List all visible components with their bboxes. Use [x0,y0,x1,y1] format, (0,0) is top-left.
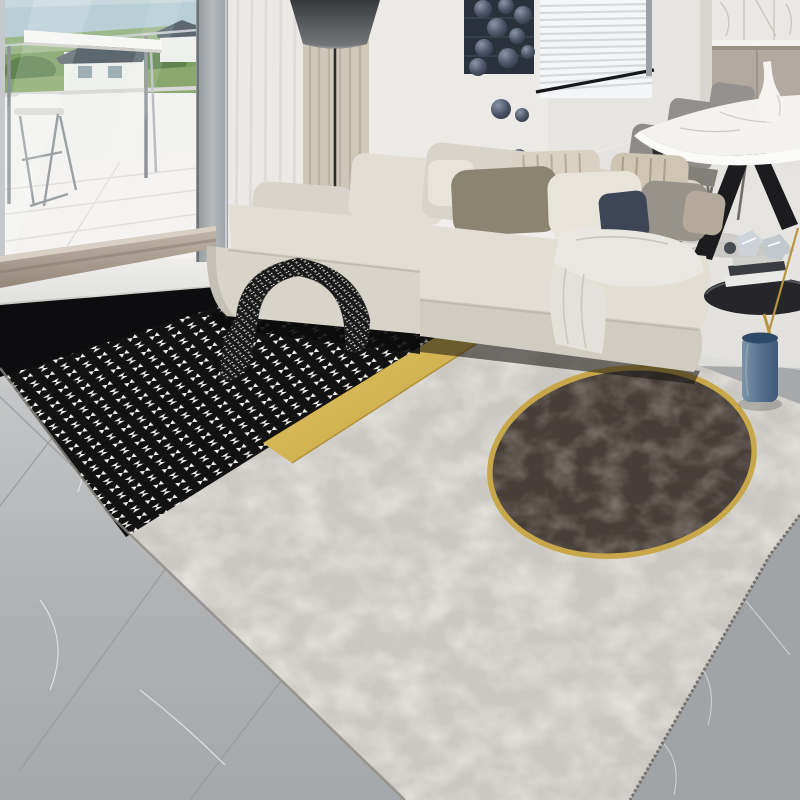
art-sphere [509,28,525,44]
counter-ledge [712,40,800,46]
art-sphere [521,45,535,59]
window-frame-left [0,0,5,262]
cabinet-shadow [712,46,800,50]
living-room-photo [0,0,800,800]
pillow-tan [681,189,726,236]
house-window [78,66,92,78]
wall-sphere [515,108,529,122]
house-window [108,66,122,78]
wall-corner [700,0,712,104]
art-sphere [474,0,492,18]
vase-opening [742,333,778,344]
wall-sphere [491,99,511,119]
balcony-glass-view [0,0,208,258]
art-sphere [487,18,507,38]
window-frame-right [646,0,652,76]
art-sphere [469,58,487,76]
window-blinds [536,0,654,98]
scene-canvas [0,0,800,800]
decor-ball [724,242,736,254]
window-frame-mullion [196,0,228,262]
art-sphere [475,39,493,57]
lamp-shade [290,0,380,49]
art-sphere [498,48,518,68]
balcony-window [0,0,228,262]
art-sphere [514,6,532,24]
pillow-olive [450,165,559,236]
